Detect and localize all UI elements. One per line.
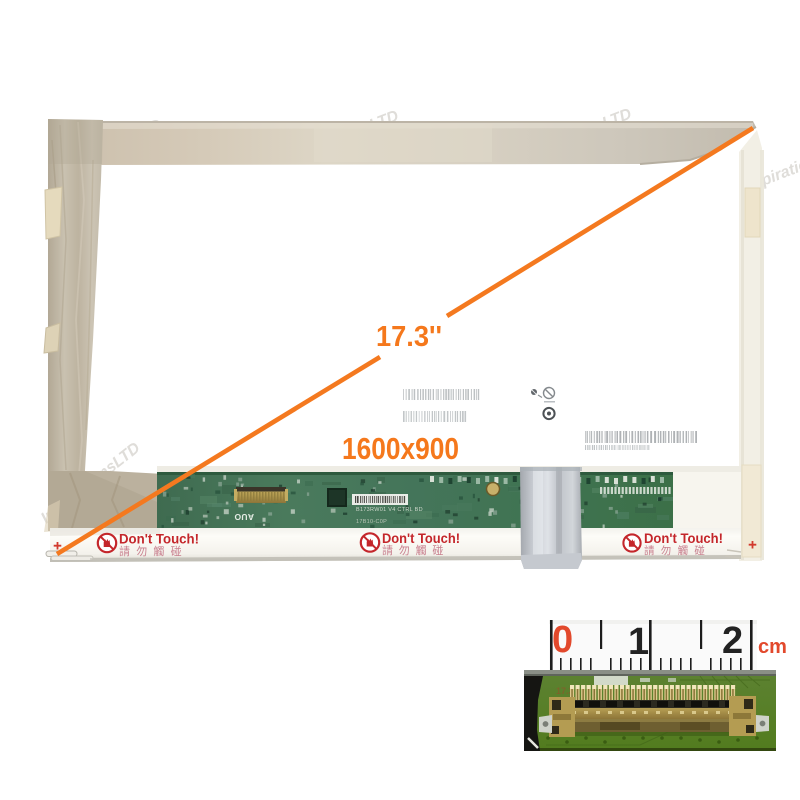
svg-text:請勿觸碰: 請勿觸碰 (119, 544, 188, 558)
svg-text:B173RW01 V4 CTRL BD: B173RW01 V4 CTRL BD (356, 507, 423, 513)
svg-text:17B10-C0P: 17B10-C0P (356, 519, 387, 525)
svg-text:2: 2 (722, 620, 743, 662)
svg-text:Don't Touch!: Don't Touch! (119, 531, 199, 547)
svg-text:請勿觸碰: 請勿觸碰 (644, 544, 711, 557)
svg-text:Don't Touch!: Don't Touch! (382, 530, 460, 546)
svg-text:1: 1 (628, 621, 649, 663)
svg-text:0: 0 (552, 619, 573, 661)
svg-text:17.3'': 17.3'' (376, 321, 442, 353)
svg-text:Don't Touch!: Don't Touch! (644, 531, 723, 546)
svg-text:cm: cm (758, 636, 787, 658)
svg-text:AUO: AUO (234, 512, 254, 522)
svg-text:請勿觸碰: 請勿觸碰 (382, 543, 449, 557)
svg-text:1600x900: 1600x900 (342, 431, 459, 466)
